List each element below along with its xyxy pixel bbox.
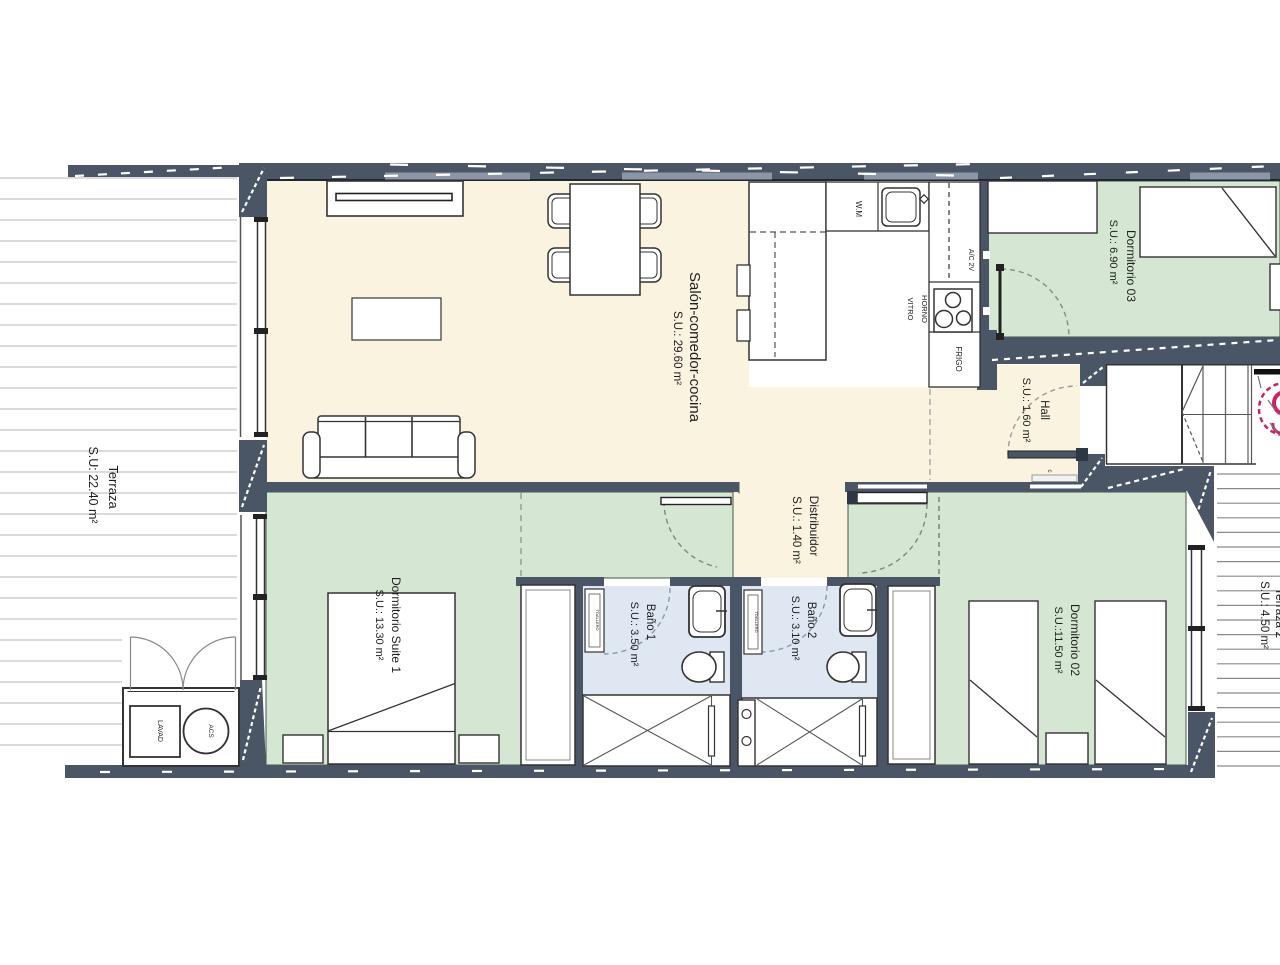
svg-text:S.U.: 13.30 m²: S.U.: 13.30 m² (373, 590, 385, 661)
svg-text:S.U.: 3.10 m²: S.U.: 3.10 m² (789, 596, 801, 661)
svg-text:FRIGO: FRIGO (954, 346, 963, 371)
svg-text:Baño 2: Baño 2 (805, 602, 817, 638)
svg-text:Salón-comedor-cocina: Salón-comedor-cocina (686, 272, 703, 423)
svg-text:Baño 1: Baño 1 (644, 604, 656, 640)
svg-text:Hall: Hall (1038, 400, 1050, 420)
svg-text:S.U.: 29.60 m²: S.U.: 29.60 m² (671, 311, 683, 385)
svg-text:W.M: W.M (854, 201, 863, 217)
svg-text:S.U.: 6.90 m²: S.U.: 6.90 m² (1107, 220, 1119, 285)
svg-text:TOALLERO: TOALLERO (595, 609, 600, 630)
svg-text:S.U.:11.50 m²: S.U.:11.50 m² (1052, 606, 1064, 673)
svg-text:c: c (1046, 470, 1052, 473)
svg-text:S.U.: 1.40 m²: S.U.: 1.40 m² (790, 496, 802, 564)
svg-text:A/C 2V: A/C 2V (967, 249, 974, 272)
svg-text:ACS: ACS (207, 724, 214, 738)
svg-text:Distribuidor: Distribuidor (807, 496, 821, 557)
svg-text:TOALLERO: TOALLERO (754, 611, 759, 632)
svg-text:Dormitorio 03: Dormitorio 03 (1124, 230, 1138, 302)
svg-text:LAVAD: LAVAD (156, 720, 163, 742)
svg-text:S.U.: 4.50 m²: S.U.: 4.50 m² (1258, 581, 1270, 649)
svg-text:Dormitorio 02: Dormitorio 02 (1068, 604, 1082, 676)
svg-text:S.U.: 1.60 m²: S.U.: 1.60 m² (1020, 378, 1032, 443)
svg-text:HORNO: HORNO (920, 295, 929, 323)
svg-text:Terraza: Terraza (106, 465, 121, 509)
svg-text:S.U.: 3.50 m²: S.U.: 3.50 m² (628, 602, 640, 667)
svg-text:VITRO: VITRO (906, 298, 915, 321)
svg-text:Dormitorio Suite 1: Dormitorio Suite 1 (389, 577, 403, 673)
svg-text:S.U: 22.40 m²: S.U: 22.40 m² (86, 446, 100, 523)
svg-text:Terraza 2: Terraza 2 (1273, 588, 1280, 638)
